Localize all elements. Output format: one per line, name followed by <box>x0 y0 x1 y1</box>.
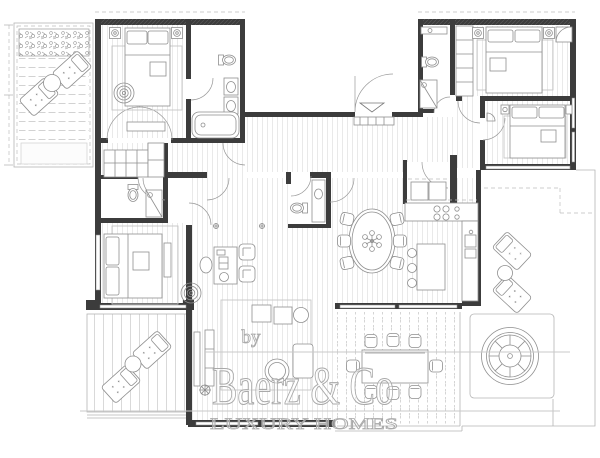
coffee-table-1 <box>252 305 271 322</box>
utility-room <box>408 179 448 200</box>
shower-north <box>420 80 437 108</box>
watermark-tagline: LUXURY HOMES <box>210 416 398 433</box>
toilet-symbol-north <box>422 57 439 67</box>
ensuite-bathroom <box>192 55 239 138</box>
vanity <box>312 180 325 222</box>
shower <box>146 190 162 217</box>
bed-ne <box>486 27 542 93</box>
watermark-brand: Baerz & Co <box>212 356 394 416</box>
kitchen-island <box>417 244 445 290</box>
jacuzzi <box>482 328 539 385</box>
floor-plan-canvas: by Baerz & Co LUXURY HOMES <box>0 0 600 458</box>
terrace-northwest <box>14 23 93 167</box>
side-table <box>294 308 309 323</box>
floor-plan-svg: by Baerz & Co LUXURY HOMES <box>0 0 600 458</box>
bed-east <box>510 105 565 158</box>
lounge-chairs-east <box>492 231 532 313</box>
tv-sideboard <box>194 332 200 386</box>
terrace-southwest <box>87 314 189 418</box>
kitchen-sink <box>465 235 476 247</box>
stool-1 <box>408 249 417 258</box>
hall-closet <box>456 26 473 96</box>
entrance-door <box>354 74 394 125</box>
desk <box>214 247 237 284</box>
bathroom-north <box>420 27 447 108</box>
armchair-1 <box>239 244 255 260</box>
toilet-symbol-powder <box>291 203 308 213</box>
stool-2 <box>408 264 417 273</box>
toilet-symbol-wc <box>128 185 138 202</box>
watermark-prefix: by <box>242 327 262 348</box>
bath-shelf <box>421 27 447 34</box>
bench-west <box>164 243 171 277</box>
dining-area <box>338 209 407 273</box>
entrance-marker <box>360 103 384 112</box>
washer <box>411 182 428 200</box>
kitchen <box>405 200 478 301</box>
bed-west <box>104 234 162 298</box>
dryer <box>429 182 446 200</box>
dresser-nw <box>127 122 165 131</box>
terrace-east <box>462 170 595 426</box>
kitchen-counter-top <box>405 203 478 221</box>
coffee-table-2 <box>274 307 292 324</box>
desk-chair <box>200 257 212 273</box>
bathtub <box>192 112 239 138</box>
bed-nw <box>125 28 170 106</box>
stool-3 <box>408 279 417 288</box>
toilet-symbol <box>219 55 236 65</box>
armchair-2 <box>239 266 255 282</box>
